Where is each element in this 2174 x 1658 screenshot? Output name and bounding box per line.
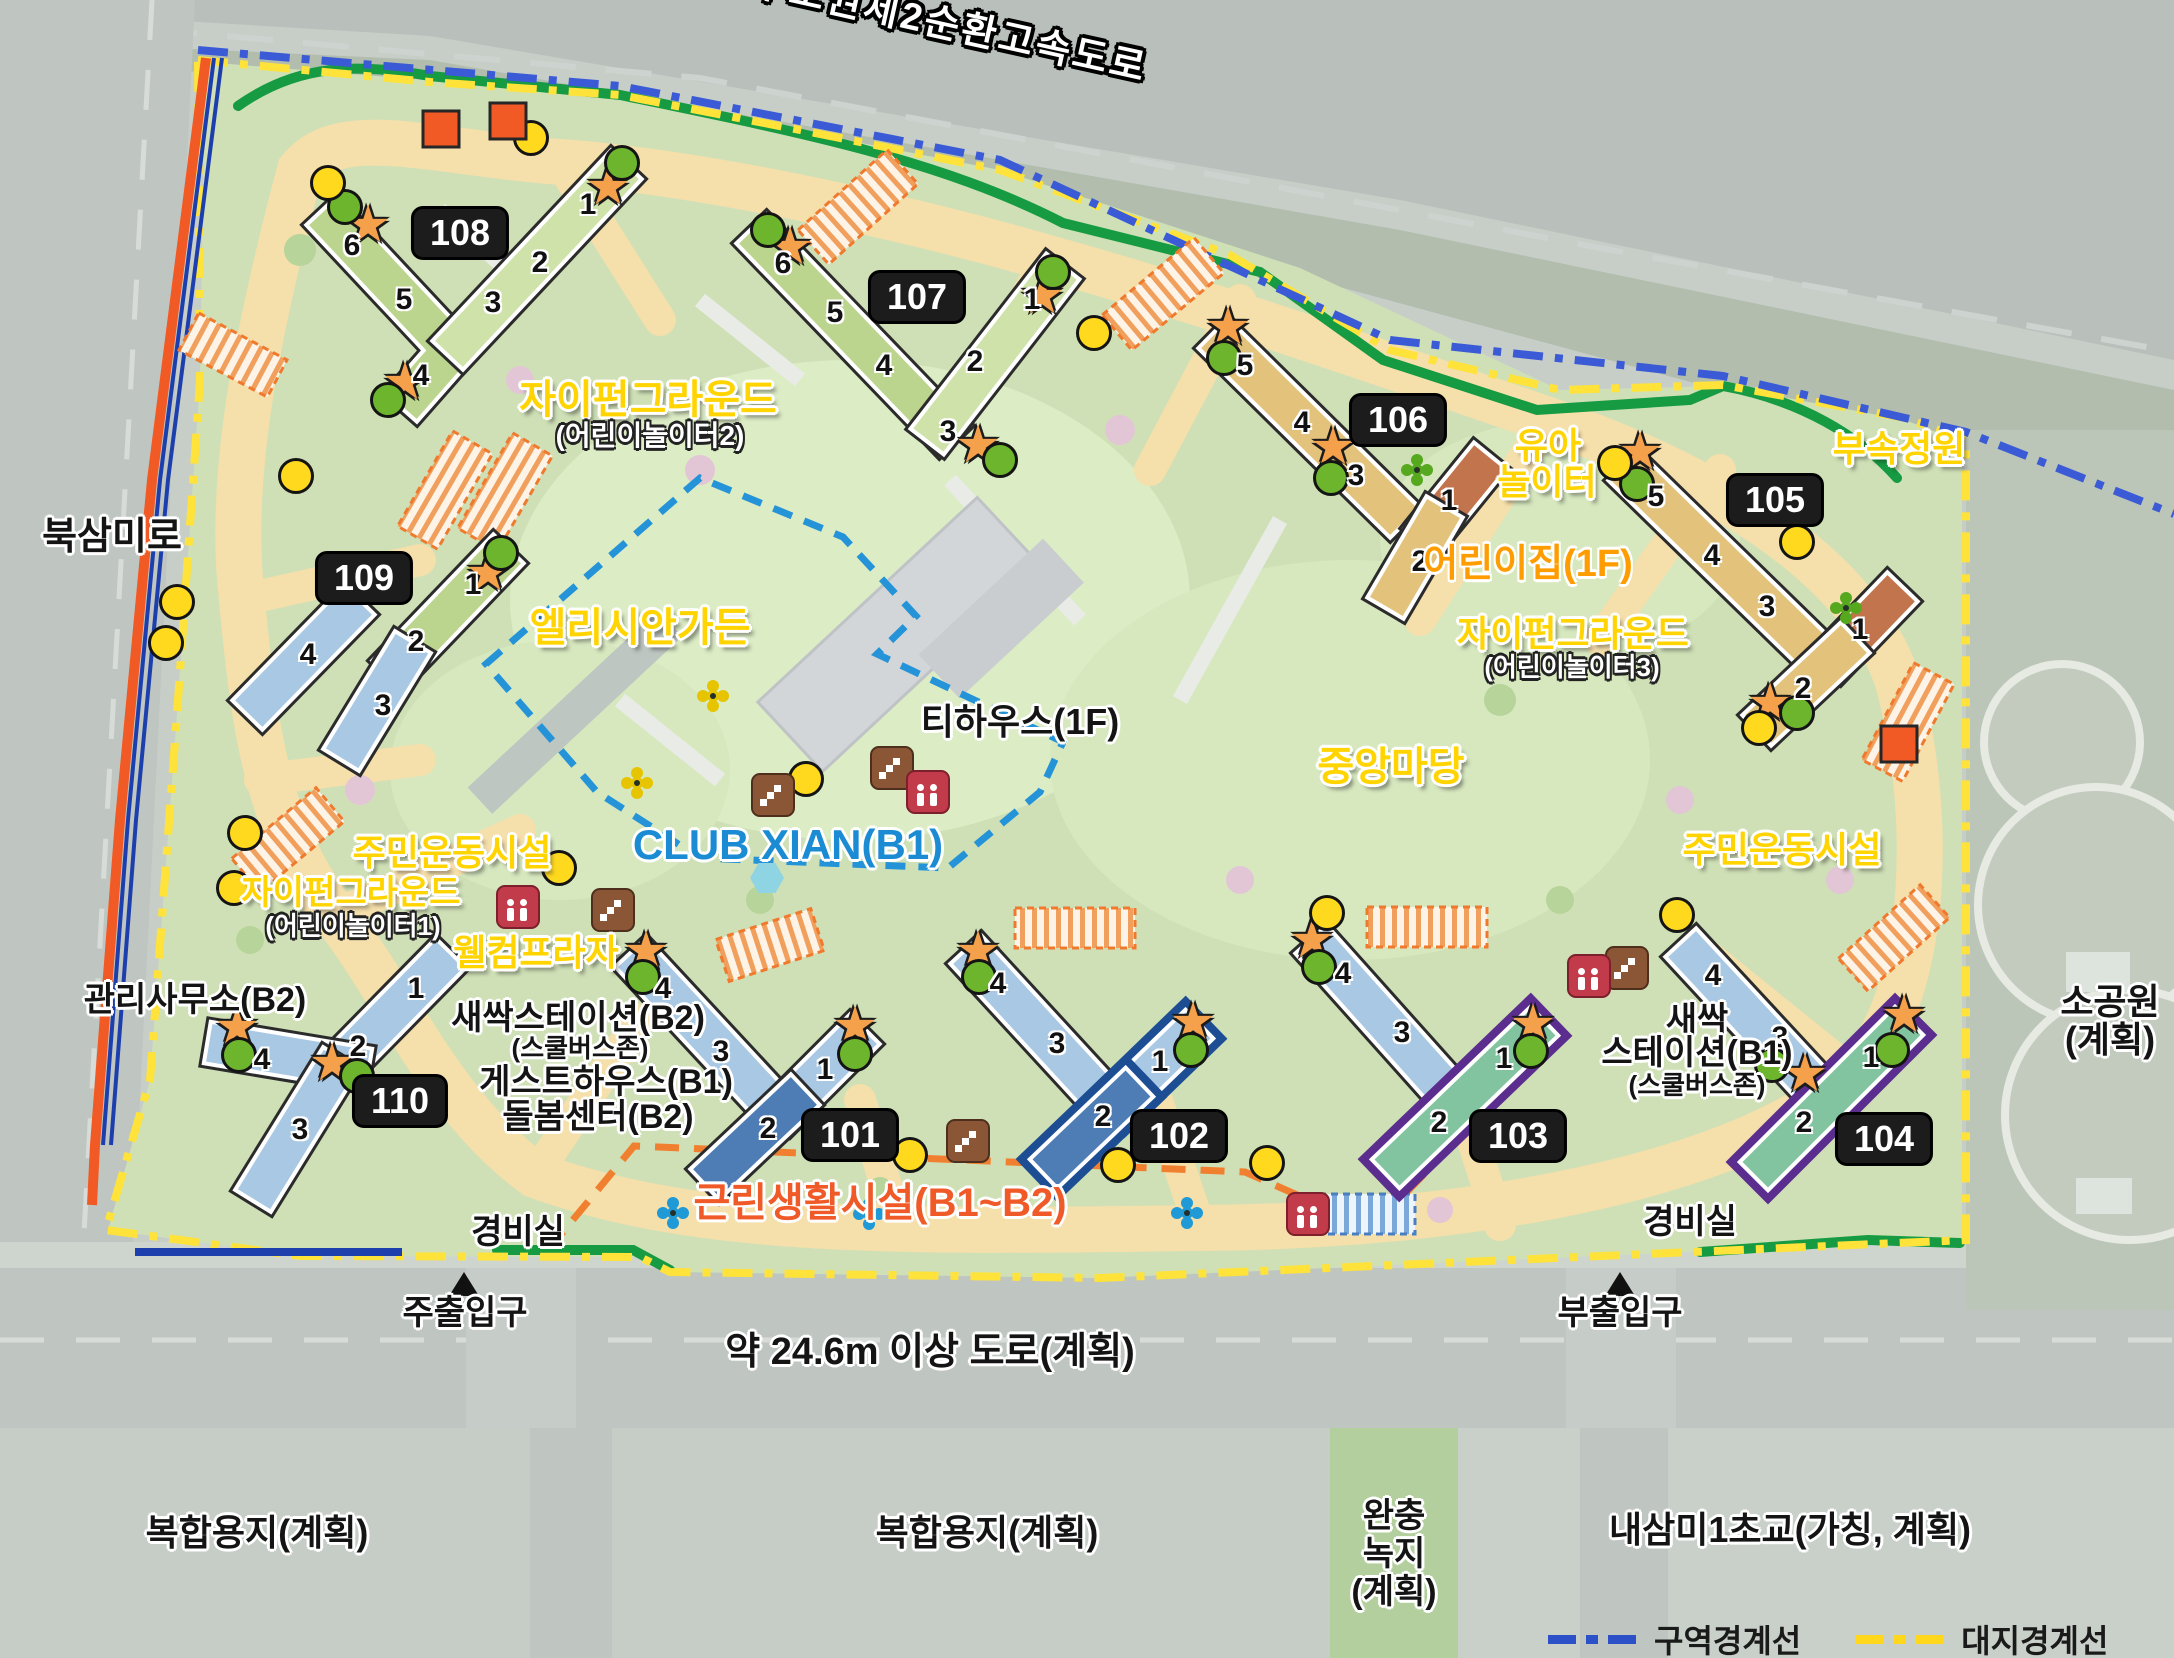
small-park bbox=[1966, 430, 2174, 1310]
legend: 구역경계선 대지경계선 bbox=[1548, 1616, 2108, 1658]
bottom-road-and-plots bbox=[0, 1242, 2174, 1658]
parking-lot bbox=[1015, 908, 1135, 948]
parking-lot bbox=[1367, 907, 1487, 947]
site-boundary-sample bbox=[1855, 1635, 1947, 1644]
legend-item-zone: 구역경계선 bbox=[1548, 1616, 1801, 1658]
zone-boundary-label: 구역경계선 bbox=[1654, 1616, 1801, 1658]
site-boundary-label: 대지경계선 bbox=[1961, 1616, 2108, 1658]
legend-item-site: 대지경계선 bbox=[1855, 1616, 2108, 1658]
zone-boundary-sample bbox=[1548, 1635, 1640, 1644]
base-map-artwork bbox=[0, 0, 2174, 1658]
site-plan-map: ★★★★★★★★★★★★★★★★★★★★★ 654123108654321107… bbox=[0, 0, 2174, 1658]
